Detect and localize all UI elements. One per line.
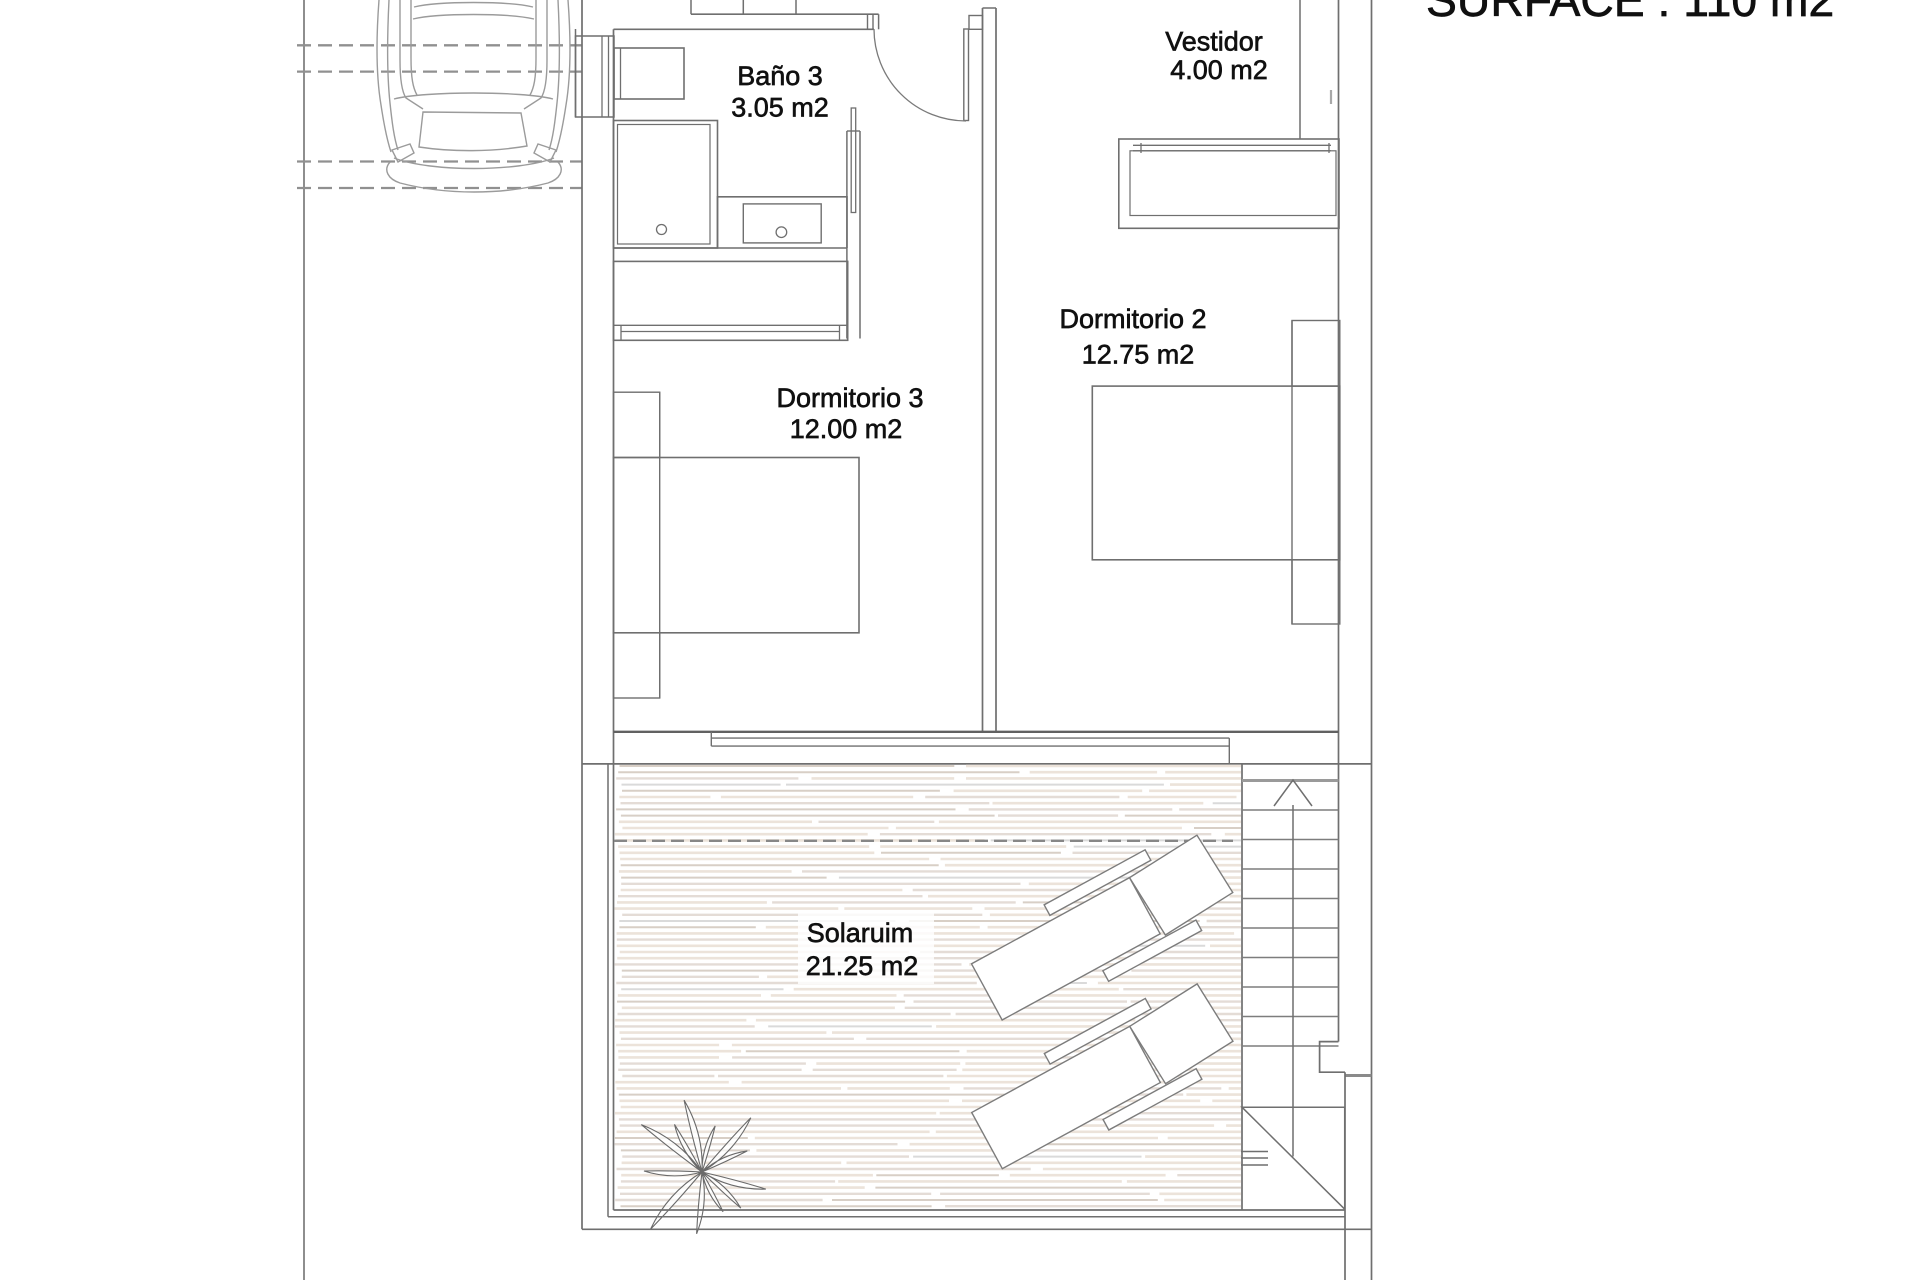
svg-text:12.75 m2: 12.75 m2 bbox=[1082, 340, 1195, 370]
svg-text:3.05 m2: 3.05 m2 bbox=[731, 93, 829, 123]
svg-text:Solaruim: Solaruim bbox=[807, 918, 914, 948]
svg-text:4.00 m2: 4.00 m2 bbox=[1170, 55, 1268, 85]
svg-text:Vestidor: Vestidor bbox=[1165, 27, 1263, 57]
svg-text:Baño 3: Baño 3 bbox=[737, 61, 823, 91]
svg-text:21.25 m2: 21.25 m2 bbox=[806, 951, 919, 981]
svg-text:SURFACE : 110 m2: SURFACE : 110 m2 bbox=[1426, 0, 1834, 26]
svg-text:12.00 m2: 12.00 m2 bbox=[790, 414, 903, 444]
svg-text:Dormitorio 2: Dormitorio 2 bbox=[1059, 304, 1206, 334]
svg-text:Dormitorio 3: Dormitorio 3 bbox=[776, 383, 923, 413]
